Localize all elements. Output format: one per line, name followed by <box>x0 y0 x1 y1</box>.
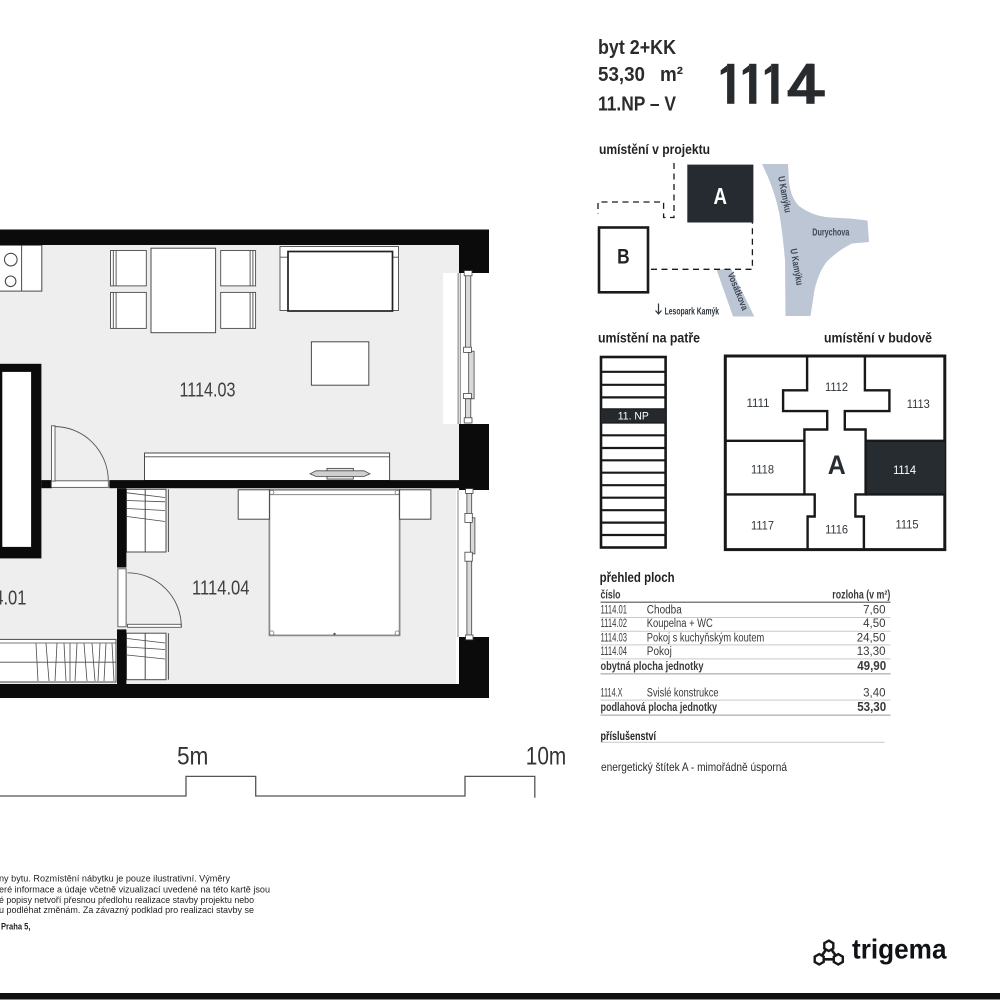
svg-text:ny bytu. Rozmístění nábytku je: ny bytu. Rozmístění nábytku je pouze ilu… <box>0 874 230 885</box>
svg-text:podlahová plocha jednotky: podlahová plocha jednotky <box>601 700 718 714</box>
svg-text:1114.03: 1114.03 <box>180 379 236 402</box>
svg-text:10m: 10m <box>526 743 567 771</box>
svg-text:Lesopark Kamýk: Lesopark Kamýk <box>665 307 720 318</box>
svg-text:Pokoj s kuchyňským koutem: Pokoj s kuchyňským koutem <box>647 633 765 645</box>
svg-text:A: A <box>828 450 846 480</box>
svg-text:Koupelna + WC: Koupelna + WC <box>647 618 713 630</box>
svg-text:4,50: 4,50 <box>863 618 885 630</box>
svg-text:é popisy netvoří přesnou předl: é popisy netvoří přesnou předlohu realiz… <box>0 895 254 906</box>
svg-text:1118: 1118 <box>751 463 774 477</box>
svg-text:5m: 5m <box>177 743 209 771</box>
svg-text:umístění na patře: umístění na patře <box>598 330 700 346</box>
svg-text:obytná plocha jednotky: obytná plocha jednotky <box>601 659 704 673</box>
svg-text:Svislé konstrukce: Svislé konstrukce <box>647 687 719 699</box>
svg-text:A: A <box>714 183 728 209</box>
svg-text:1114.03: 1114.03 <box>601 633 628 645</box>
svg-text:Chodba: Chodba <box>647 605 683 617</box>
svg-text:Pokoj: Pokoj <box>647 646 672 658</box>
svg-text:trigema: trigema <box>852 934 947 965</box>
svg-text:Praha 5,: Praha 5, <box>1 922 31 933</box>
svg-text:číslo: číslo <box>601 590 621 602</box>
svg-text:umístění v budově: umístění v budově <box>824 330 932 346</box>
svg-text:1114.01: 1114.01 <box>0 587 27 610</box>
svg-text:1114.02: 1114.02 <box>601 618 628 630</box>
svg-text:byt 2+KK: byt 2+KK <box>598 37 676 59</box>
svg-text:24,50: 24,50 <box>857 633 886 645</box>
svg-text:eré informace a údaje včetně v: eré informace a údaje včetně vizualizací… <box>0 884 270 895</box>
svg-text:1114.04: 1114.04 <box>192 577 250 600</box>
svg-text:1111: 1111 <box>747 396 770 410</box>
svg-text:přehled ploch: přehled ploch <box>600 569 675 585</box>
svg-text:1114.X: 1114.X <box>601 687 623 699</box>
svg-text:Durychova: Durychova <box>812 228 849 239</box>
svg-text:B: B <box>617 246 630 269</box>
svg-text:1112: 1112 <box>825 380 848 394</box>
svg-text:53,30: 53,30 <box>598 64 645 86</box>
svg-text:příslušenství: příslušenství <box>601 731 657 743</box>
svg-text:energetický štítek A - mimořád: energetický štítek A - mimořádně úsporná <box>601 760 787 774</box>
svg-text:1114.04: 1114.04 <box>601 646 628 658</box>
svg-text:u podléhat změnám. Za závazný: u podléhat změnám. Za závazný podklad pr… <box>0 905 254 916</box>
svg-text:rozloha (v m²): rozloha (v m²) <box>832 590 890 602</box>
svg-text:3,40: 3,40 <box>863 687 885 699</box>
svg-text:1113: 1113 <box>907 397 930 411</box>
svg-text:13,30: 13,30 <box>857 646 886 658</box>
svg-text:m²: m² <box>660 64 683 86</box>
svg-text:53,30: 53,30 <box>857 699 886 714</box>
svg-text:1116: 1116 <box>825 523 848 537</box>
svg-text:11. NP: 11. NP <box>618 411 649 423</box>
svg-text:1114: 1114 <box>893 463 916 477</box>
svg-text:49,90: 49,90 <box>857 658 886 673</box>
svg-text:1117: 1117 <box>751 519 774 533</box>
svg-text:umístění v projektu: umístění v projektu <box>599 141 710 157</box>
svg-text:11.NP – V: 11.NP – V <box>598 94 677 116</box>
svg-text:1115: 1115 <box>896 518 919 532</box>
svg-text:1114.01: 1114.01 <box>601 605 628 617</box>
svg-text:7,60: 7,60 <box>863 605 885 617</box>
